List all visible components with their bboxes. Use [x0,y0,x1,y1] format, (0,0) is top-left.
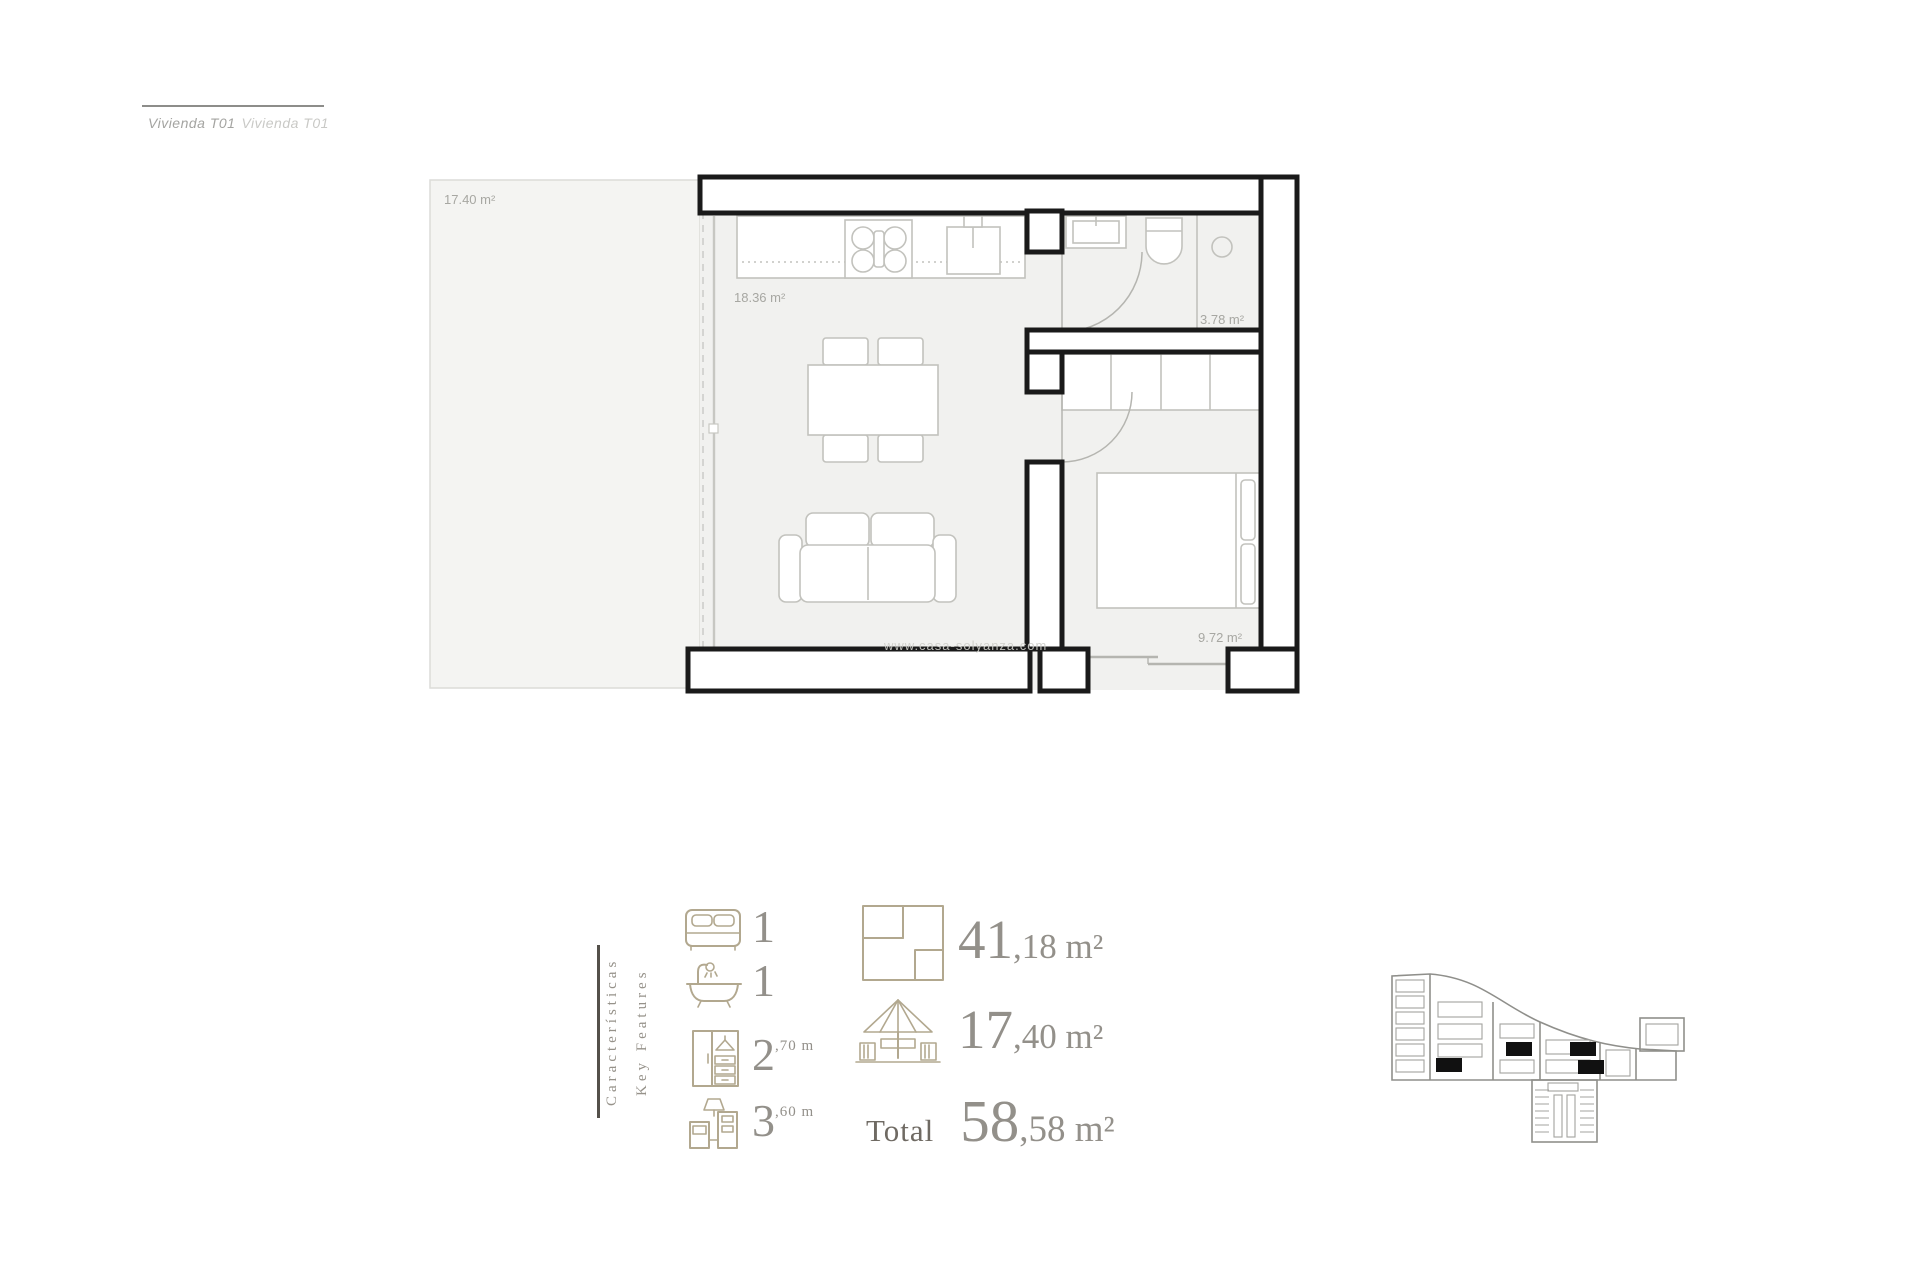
floor-plan: 17.40 m² 18.36 m² 3.78 m² 9.72 m² www.ca… [420,170,1320,715]
bed [1097,473,1260,608]
page-title-primary: Vivienda T01 [148,115,235,131]
sofa [779,513,956,602]
room-area-label-terrace: 17.40 m² [444,192,496,207]
built-area: 41,18 m² [958,912,1103,967]
wardrobe [1062,354,1260,410]
site-plan-right-block [1640,1018,1684,1051]
bedroom-count-value: 1 [752,901,775,952]
kitchen-length-value: 3 [752,1095,775,1146]
features-divider [597,945,600,1118]
bed-icon [684,906,742,952]
page: Vivienda T01Vivienda T01 [0,0,1920,1280]
kitchen-length-sup: ,60 m [775,1104,814,1120]
bathroom-sink [1066,211,1126,248]
terrace-area-int: 17 [958,999,1013,1060]
site-plan [1388,962,1688,1152]
terrace-icon [854,996,944,1068]
page-title: Vivienda T01Vivienda T01 [148,115,329,131]
terrace-area-dec: ,40 m² [1013,1017,1103,1056]
room-area-label-bedroom: 9.72 m² [1198,630,1243,645]
built-area-dec: ,18 m² [1013,927,1103,966]
terrace [430,180,700,688]
stove [845,220,912,278]
wardrobe-icon [692,1030,740,1088]
bedroom-count: 1 [752,904,775,950]
total-label: Total [866,1113,934,1148]
wardrobe-height: 2,70 m [752,1032,814,1078]
kitchen-counter [737,216,1025,278]
kitchen-length: 3,60 m [752,1098,814,1144]
bathroom-count: 1 [752,958,775,1004]
total-area-int: 58 [960,1088,1019,1154]
header-rule [142,105,324,107]
watermark: www.casa-solyanza.com [883,638,1047,653]
room-area-label-living: 18.36 m² [734,290,786,305]
room-area-label-bathroom: 3.78 m² [1200,312,1245,327]
features-heading-es: Características [604,943,621,1121]
page-title-secondary: Vivienda T01 [241,115,328,131]
site-plan-stair-core [1532,1080,1597,1142]
wardrobe-height-sup: ,70 m [775,1038,814,1054]
bathtub-icon [684,958,744,1010]
bathroom-count-value: 1 [752,955,775,1006]
floor-plan-icon [861,904,947,984]
kitchen-icon [688,1096,742,1150]
total-area-dec: ,58 m² [1019,1109,1114,1150]
total-area: Total58,58 m² [866,1092,1115,1151]
features-heading-en: Key Features [634,943,651,1121]
built-area-int: 41 [958,909,1013,970]
terrace-area: 17,40 m² [958,1002,1103,1057]
wardrobe-height-value: 2 [752,1029,775,1080]
toilet [1146,218,1182,264]
